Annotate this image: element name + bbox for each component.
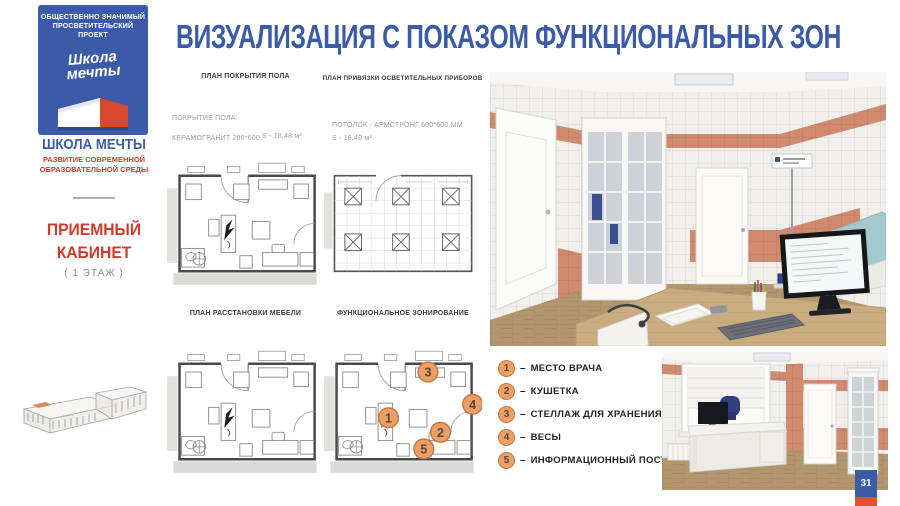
floor-spec-title: ПОКРЫТИЕ ПОЛА: [172, 115, 238, 122]
page-number-tab: 31 [855, 470, 877, 506]
svg-text:1: 1 [385, 411, 392, 425]
plan-furniture [167, 345, 323, 478]
ceiling-spec: ПОТОЛОК - АРМСТРОНГ 600*600 ММ [332, 122, 463, 129]
door-center [696, 168, 748, 284]
legend-label: МЕСТО ВРАЧА [531, 363, 603, 374]
sidebar-divider [73, 197, 115, 199]
plan-zoning: 1 2 3 4 5 [322, 345, 482, 478]
legend-dash: – [520, 409, 526, 420]
ceiling-light [806, 72, 848, 80]
zoning-plan-label: ФУНКЦИОНАЛЬНОЕ ЗОНИРОВАНИЕ [318, 310, 488, 317]
svg-text:5: 5 [420, 443, 427, 457]
zone-marker-2: 2 [431, 422, 451, 442]
brand-badge: ОБЩЕСТВЕННО ЗНАЧИМЫЙ ПРОСВЕТИТЕЛЬСКИЙ ПР… [38, 5, 148, 135]
zone-marker-1: 1 [379, 408, 399, 428]
zone-marker-3: 3 [418, 362, 438, 382]
brand-script-logo: Школа мечты [37, 47, 149, 84]
legend-label: ВЕСЫ [531, 432, 562, 443]
brand-building-graphic [50, 91, 136, 131]
legend-dash: – [520, 432, 526, 443]
page-number: 31 [855, 470, 877, 497]
svg-text:2: 2 [437, 426, 444, 440]
legend-dash: – [520, 363, 526, 374]
page-tab-accent [855, 497, 877, 506]
ceiling-light [754, 353, 790, 361]
legend-dash: – [520, 455, 526, 466]
zone-number-badge: 4 [498, 429, 515, 446]
page-title: ВИЗУАЛИЗАЦИЯ С ПОКАЗОМ ФУНКЦИОНАЛЬНЫХ ЗО… [176, 18, 900, 60]
floor-spec-material: КЕРАМОГРАНИТ 200*600, [172, 135, 262, 142]
zone-number-badge: 5 [498, 452, 515, 469]
building-axon-thumbnail [20, 383, 148, 441]
legend-label: КУШЕТКА [531, 386, 579, 397]
zone-number-badge: 2 [498, 383, 515, 400]
render-photo-main [490, 72, 886, 346]
lighting-plan-label: ПЛАН ПРИВЯЗКИ ОСВЕТИТЕЛЬНЫХ ПРИБОРОВ [315, 75, 490, 82]
zone-number-badge: 1 [498, 360, 515, 377]
svg-text:3: 3 [425, 366, 432, 380]
room-title: ПРИЕМНЫЙ КАБИНЕТ [30, 218, 159, 264]
brand-tagline: РАЗВИТИЕ СОВРЕМЕННОЙ ОБРАЗОВАТЕЛЬНОЙ СРЕ… [24, 155, 164, 175]
glass-cabinet [847, 368, 879, 474]
presentation-slide: ОБЩЕСТВЕННО ЗНАЧИМЫЙ ПРОСВЕТИТЕЛЬСКИЙ ПР… [0, 0, 900, 506]
room-floor-note: ( 1 ЭТАЖ ) [24, 268, 164, 279]
svg-text:4: 4 [469, 398, 476, 412]
zone-number-badge: 3 [498, 406, 515, 423]
legend-label: ИНФОРМАЦИОННЫЙ ПОСТЕР [531, 455, 680, 466]
door [804, 384, 836, 464]
door-left [496, 108, 556, 310]
furniture-plan-label: ПЛАН РАССТАНОВКИ МЕБЕЛИ [168, 310, 323, 317]
glass-cabinet [582, 118, 666, 300]
badge-line-1: ОБЩЕСТВЕННО ЗНАЧИМЫЙ [38, 13, 148, 22]
zone-marker-4: 4 [463, 394, 482, 414]
plan-lighting [324, 157, 480, 290]
floor-covering-plan-label: ПЛАН ПОКРЫТИЯ ПОЛА [168, 73, 323, 80]
legend-dash: – [520, 386, 526, 397]
ceiling-spec-area: S - 18,48 м² [332, 135, 372, 142]
brand-badge-project-text: ОБЩЕСТВЕННО ЗНАЧИМЫЙ ПРОСВЕТИТЕЛЬСКИЙ ПР… [38, 5, 148, 40]
ceiling-light [675, 74, 733, 85]
desk [688, 422, 786, 472]
zone-marker-5: 5 [414, 439, 434, 459]
badge-line-2: ПРОСВЕТИТЕЛЬСКИЙ ПРОЕКТ [38, 22, 148, 40]
floor-spec-area: S - 18,48 м² [262, 133, 302, 140]
brand-name: ШКОЛА МЕЧТЫ [32, 136, 155, 153]
plan-floor-covering [167, 157, 323, 290]
